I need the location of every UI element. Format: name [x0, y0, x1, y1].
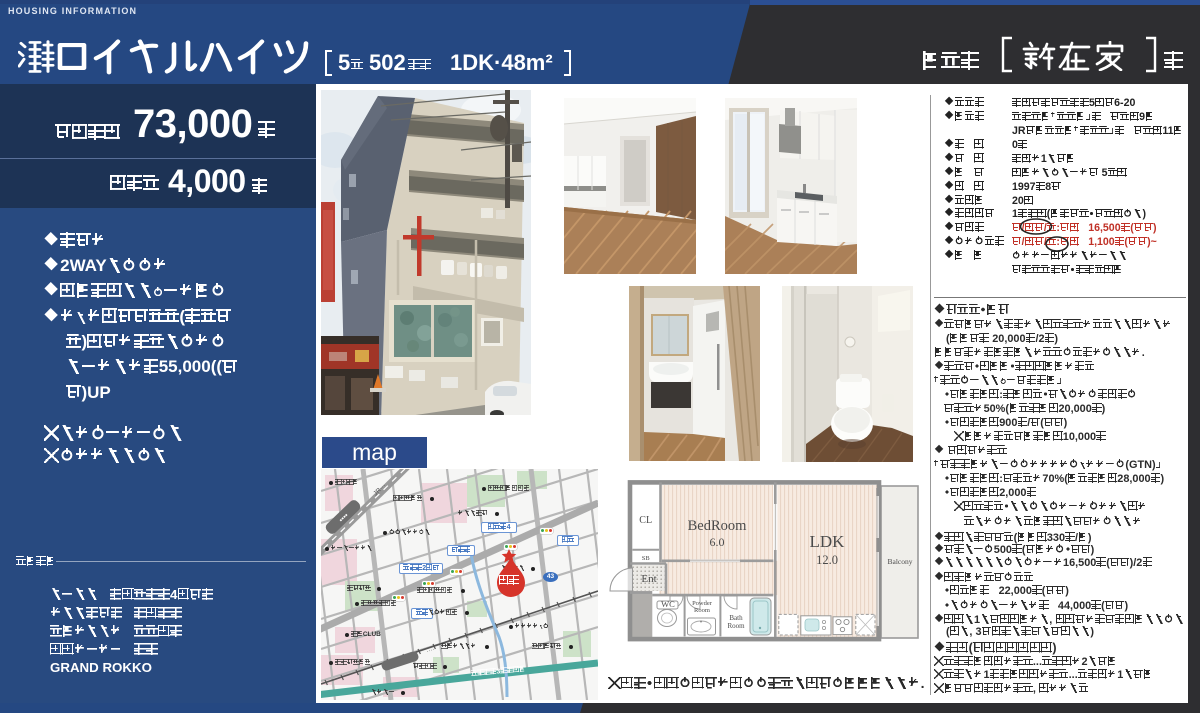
svg-text:Room: Room: [694, 607, 710, 614]
svg-text:BedRoom: BedRoom: [688, 518, 748, 534]
svg-text:SB: SB: [642, 555, 651, 562]
svg-text:Room: Room: [727, 622, 745, 630]
svg-text:CL: CL: [639, 515, 652, 526]
svg-text:12.0: 12.0: [816, 553, 838, 567]
svg-text:Bath: Bath: [729, 614, 743, 622]
svg-text:LDK: LDK: [810, 532, 846, 551]
svg-text:6.0: 6.0: [710, 535, 725, 549]
svg-text:WC: WC: [661, 599, 675, 609]
svg-text:Balcony: Balcony: [888, 557, 913, 566]
svg-text:Ent: Ent: [641, 573, 656, 585]
svg-text:Powder: Powder: [692, 600, 713, 607]
